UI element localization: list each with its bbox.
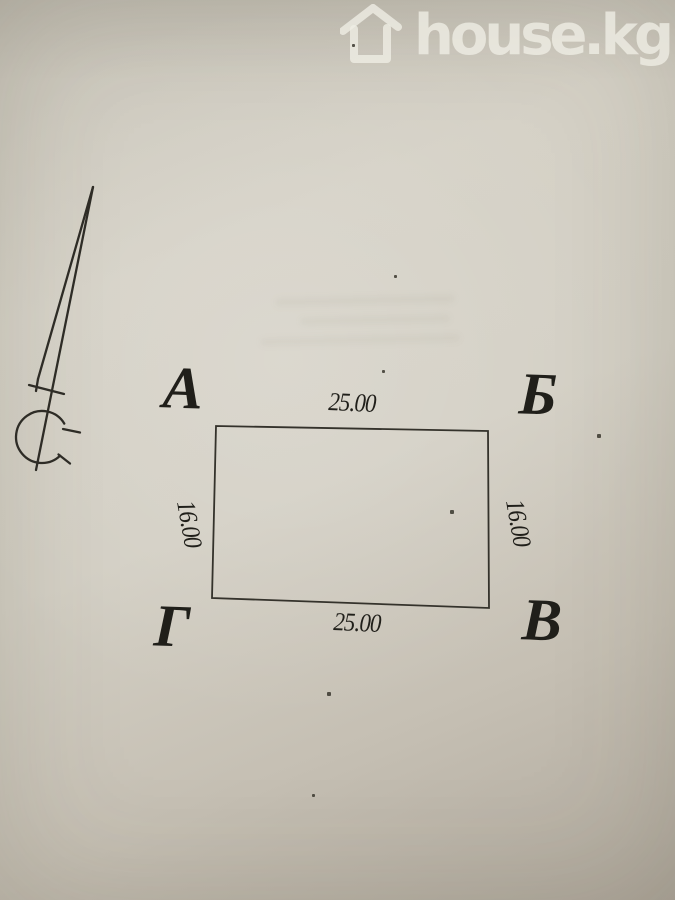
corner-label-top-left: А	[162, 357, 204, 418]
plot-boundary	[212, 426, 489, 608]
corner-label-bottom-left: Г	[153, 595, 191, 656]
paper-photo: house.kg С А Б В Г 25.00 25.00 16.00 16.…	[0, 0, 675, 900]
dimension-left: 16.00	[172, 499, 206, 550]
corner-label-top-right: Б	[518, 363, 558, 424]
paper-speck	[394, 275, 397, 278]
corner-label-bottom-right: В	[521, 589, 563, 650]
paper-speck	[312, 794, 315, 797]
north-arrow-icon	[16, 187, 93, 470]
paper-speck	[450, 510, 454, 514]
dimension-bottom: 25.00	[333, 609, 381, 637]
paper-speck	[382, 370, 385, 373]
site-plan-drawing	[0, 0, 675, 900]
dimension-right: 16.00	[501, 498, 535, 549]
paper-speck	[327, 692, 331, 696]
dimension-top: 25.00	[328, 389, 376, 417]
paper-speck	[352, 44, 355, 47]
paper-speck	[597, 434, 601, 438]
